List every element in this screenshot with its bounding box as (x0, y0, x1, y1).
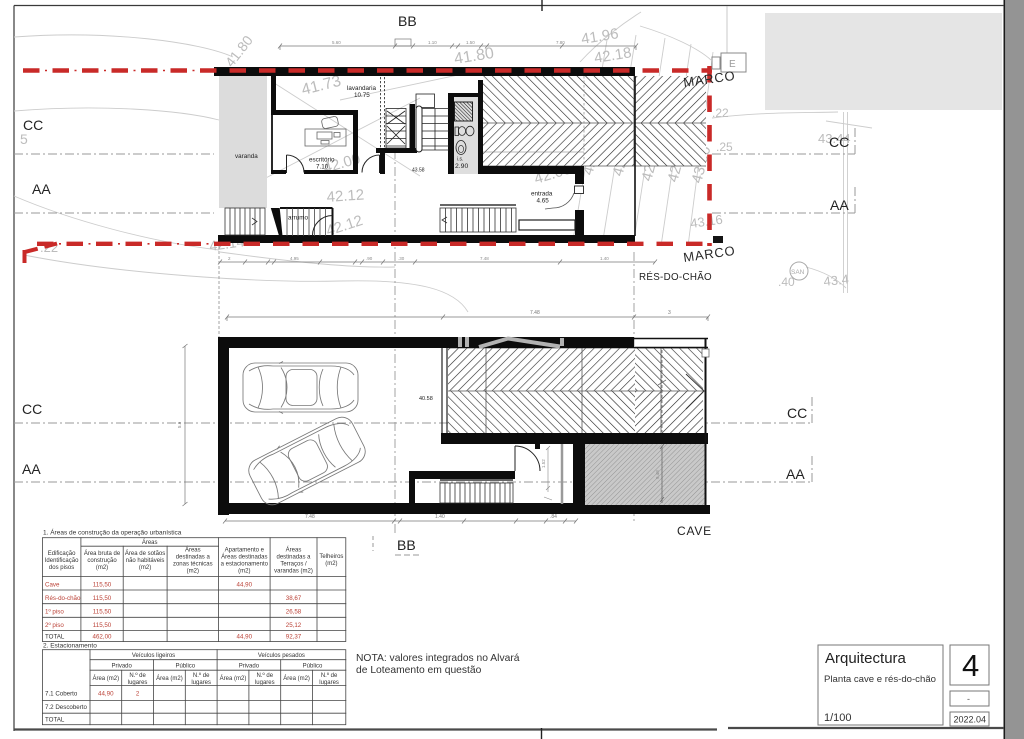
svg-text:44,90: 44,90 (237, 582, 253, 589)
svg-text:7.1 Coberto: 7.1 Coberto (45, 691, 78, 698)
svg-text:7.48: 7.48 (305, 514, 315, 520)
svg-text:2.90: 2.90 (455, 163, 468, 170)
svg-text:Telheiros: Telheiros (319, 554, 343, 560)
svg-text:1.50: 1.50 (466, 40, 475, 45)
svg-text:Área bruta de: Área bruta de (84, 550, 121, 557)
svg-text:i.s.: i.s. (457, 157, 463, 163)
svg-text:RÉS-DO-CHÃO: RÉS-DO-CHÃO (639, 272, 712, 283)
svg-text:Área (m2): Área (m2) (220, 675, 247, 682)
svg-text:lugares: lugares (255, 680, 275, 686)
svg-text:CC: CC (787, 405, 807, 421)
svg-text:1.10: 1.10 (428, 40, 437, 45)
svg-text:1. Áreas de construção da oper: 1. Áreas de construção da operação urban… (43, 528, 182, 537)
svg-text:Rés-do-chão: Rés-do-chão (45, 595, 81, 602)
svg-text:Arquitectura: Arquitectura (825, 650, 907, 667)
svg-text:Público: Público (303, 664, 323, 670)
svg-text:Público: Público (175, 664, 195, 670)
svg-text:462,00: 462,00 (93, 634, 112, 641)
svg-text:de Loteamento em questão: de Loteamento em questão (356, 665, 482, 676)
svg-text:(m2): (m2) (96, 565, 108, 571)
svg-text:115,50: 115,50 (93, 582, 112, 589)
svg-text:BB: BB (398, 13, 417, 29)
svg-text:7.2 Descoberto: 7.2 Descoberto (45, 704, 88, 711)
svg-text:AA: AA (830, 197, 849, 213)
svg-text:Privado: Privado (239, 664, 260, 670)
svg-text:4: 4 (962, 648, 979, 683)
svg-text:varanda: varanda (235, 153, 258, 160)
svg-text:N.º de: N.º de (257, 672, 274, 679)
svg-text:7.80: 7.80 (556, 40, 565, 45)
svg-text:CC: CC (829, 134, 849, 150)
svg-text:TOTAL: TOTAL (45, 634, 65, 641)
svg-text:.84: .84 (550, 514, 557, 520)
svg-text:destinadas a: destinadas a (176, 555, 211, 561)
svg-text:.22: .22 (712, 106, 729, 120)
svg-text:115,50: 115,50 (93, 609, 112, 616)
svg-text:lugares: lugares (128, 680, 148, 686)
svg-text:BB: BB (397, 537, 416, 553)
svg-text:4.95: 4.95 (290, 256, 299, 261)
svg-text:1.40: 1.40 (435, 514, 445, 520)
svg-text:AA: AA (786, 466, 805, 482)
svg-text:2º piso: 2º piso (45, 622, 64, 629)
svg-text:TOTAL: TOTAL (45, 717, 65, 724)
svg-text:Cave: Cave (45, 582, 60, 589)
svg-text:1.52: 1.52 (541, 459, 546, 468)
svg-text:Edificação: Edificação (48, 551, 76, 557)
svg-text:Identificação: Identificação (45, 558, 79, 564)
svg-text:43.4: 43.4 (823, 271, 850, 289)
svg-text:zonas técnicas: zonas técnicas (173, 562, 213, 568)
svg-text:42.12: 42.12 (326, 186, 365, 206)
svg-text:varandas (m2): varandas (m2) (274, 569, 313, 575)
svg-text:7.48: 7.48 (480, 256, 489, 261)
svg-text:entrada: entrada (531, 191, 553, 198)
svg-text:3: 3 (668, 310, 671, 316)
svg-text:Área (m2): Área (m2) (92, 675, 119, 682)
svg-text:Área (m2): Área (m2) (283, 675, 310, 682)
svg-text:1/100: 1/100 (824, 712, 852, 724)
svg-text:escritório: escritório (309, 157, 335, 164)
svg-text:lugares: lugares (191, 680, 211, 686)
svg-text:N.º de: N.º de (193, 672, 210, 679)
svg-text:.30: .30 (398, 256, 405, 261)
svg-text:AA: AA (32, 181, 51, 197)
svg-text:25,12: 25,12 (286, 622, 302, 629)
svg-text:Áreas: Áreas (185, 547, 201, 554)
svg-text:Áreas destinadas: Áreas destinadas (221, 554, 267, 561)
svg-text:2022.04: 2022.04 (954, 715, 987, 725)
svg-text:5.9: 5.9 (177, 421, 182, 428)
svg-text:NOTA: valores integrados no Al: NOTA: valores integrados no Alvará (356, 653, 520, 664)
svg-text:CC: CC (23, 117, 43, 133)
svg-text:(m2): (m2) (238, 569, 250, 575)
svg-text:Áreas: Áreas (142, 539, 158, 546)
svg-text:(m2): (m2) (325, 561, 337, 567)
svg-text:7.10: 7.10 (316, 164, 329, 171)
svg-text:2. Estacionamento: 2. Estacionamento (43, 643, 97, 650)
svg-text:a estacionamento: a estacionamento (221, 562, 269, 568)
svg-text:Planta cave e rés-do-chão: Planta cave e rés-do-chão (824, 674, 936, 685)
svg-text:Área (m2): Área (m2) (156, 675, 183, 682)
svg-text:lugares: lugares (319, 680, 339, 686)
svg-text:construção: construção (87, 558, 117, 564)
svg-text:arrumo: arrumo (288, 215, 308, 222)
svg-text:1º piso: 1º piso (45, 609, 64, 616)
svg-text:2: 2 (136, 691, 140, 698)
svg-text:.25: .25 (716, 140, 733, 154)
svg-text:dos pisos: dos pisos (49, 565, 74, 571)
svg-text:SAN: SAN (791, 269, 805, 276)
svg-text:Terraços /: Terraços / (280, 562, 307, 568)
svg-text:AA: AA (22, 461, 41, 477)
svg-text:1.40: 1.40 (600, 256, 609, 261)
svg-text:5.60: 5.60 (332, 40, 341, 45)
svg-text:.90: .90 (366, 256, 373, 261)
svg-text:N.º de: N.º de (321, 672, 338, 679)
svg-text:Apartamento e: Apartamento e (225, 548, 265, 554)
svg-text:38,67: 38,67 (286, 595, 302, 602)
svg-text:(m2): (m2) (139, 565, 151, 571)
svg-text:Áreas: Áreas (286, 547, 302, 554)
svg-text:lavandaria: lavandaria (347, 85, 377, 92)
svg-text:40.58: 40.58 (419, 396, 433, 402)
svg-text:10.75: 10.75 (354, 92, 370, 99)
svg-text:26,58: 26,58 (286, 609, 302, 616)
svg-text:Área de sotãos: Área de sotãos (125, 550, 165, 557)
svg-text:115,50: 115,50 (93, 622, 112, 629)
svg-text:destinadas a: destinadas a (276, 555, 311, 561)
svg-text:N.º de: N.º de (129, 672, 146, 679)
svg-text:44,90: 44,90 (237, 634, 253, 641)
svg-text:43.58: 43.58 (412, 168, 425, 174)
svg-text:Veículos ligeiros: Veículos ligeiros (132, 653, 175, 659)
svg-text:CAVE: CAVE (677, 524, 712, 538)
svg-text:não habitáveis: não habitáveis (126, 558, 165, 564)
svg-text:9.48: 9.48 (655, 470, 660, 479)
svg-text:5: 5 (20, 131, 28, 147)
svg-text:4.65: 4.65 (537, 198, 550, 205)
svg-text:92,37: 92,37 (286, 634, 302, 641)
svg-text:7.48: 7.48 (530, 310, 540, 316)
svg-text:44,90: 44,90 (98, 691, 114, 698)
svg-text:-: - (967, 694, 970, 704)
svg-text:Veículos pesados: Veículos pesados (258, 653, 305, 659)
svg-text:CC: CC (22, 401, 42, 417)
svg-text:Privado: Privado (112, 664, 133, 670)
svg-text:(m2): (m2) (187, 569, 199, 575)
svg-text:115,50: 115,50 (93, 595, 112, 602)
